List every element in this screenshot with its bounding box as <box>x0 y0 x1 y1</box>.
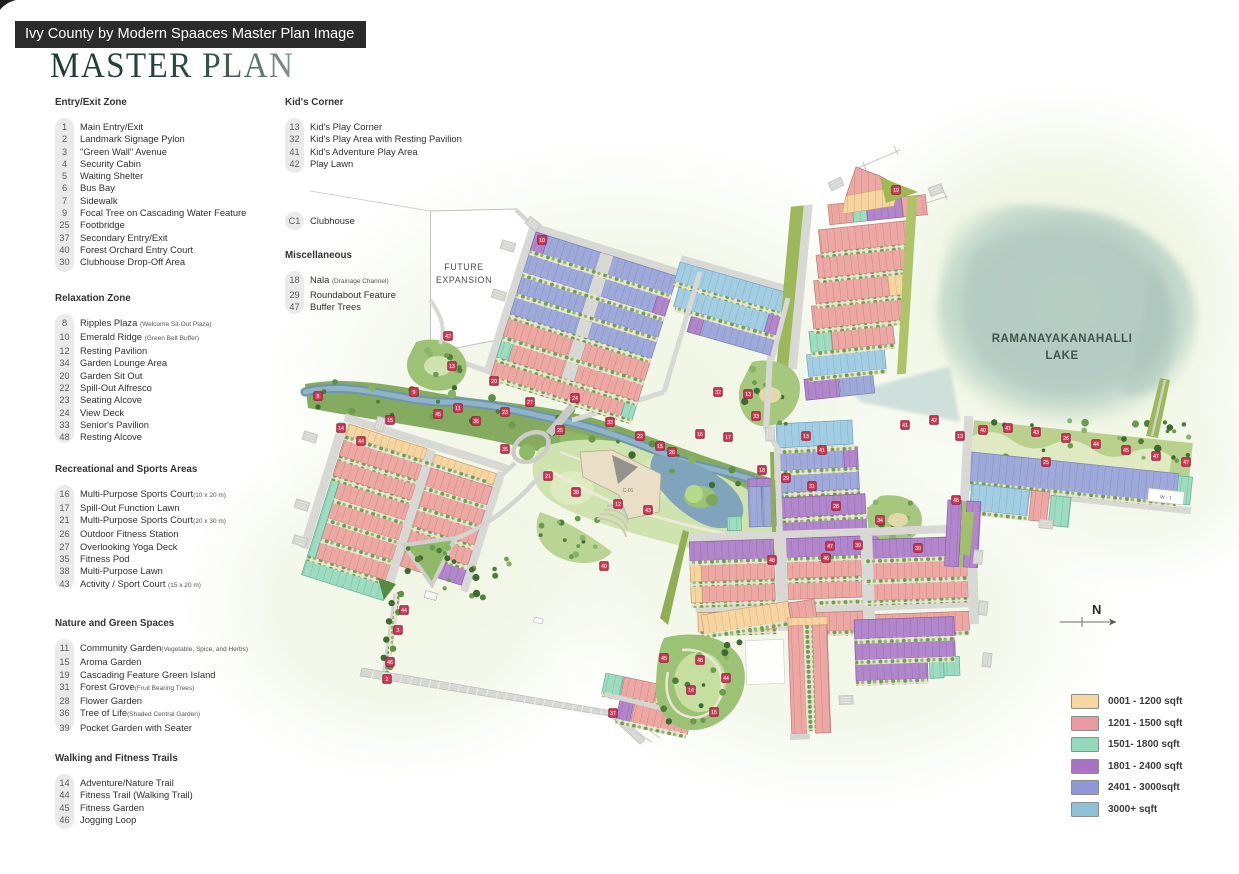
svg-text:36: 36 <box>473 419 479 425</box>
svg-text:14: 14 <box>338 426 344 432</box>
svg-text:44: 44 <box>401 608 407 614</box>
svg-text:40: 40 <box>601 564 607 570</box>
svg-text:24: 24 <box>572 396 578 402</box>
svg-text:13: 13 <box>957 434 963 440</box>
svg-text:45: 45 <box>435 412 441 418</box>
svg-text:46: 46 <box>823 556 829 562</box>
svg-text:42: 42 <box>445 334 451 340</box>
svg-text:23: 23 <box>502 410 508 416</box>
svg-text:47: 47 <box>1153 454 1159 460</box>
svg-text:9: 9 <box>413 390 416 396</box>
svg-text:44: 44 <box>358 439 364 445</box>
svg-text:38: 38 <box>573 490 579 496</box>
svg-text:42: 42 <box>931 418 937 424</box>
svg-text:15: 15 <box>657 444 663 450</box>
svg-text:33: 33 <box>607 420 613 426</box>
svg-text:29: 29 <box>783 476 789 482</box>
svg-text:46: 46 <box>953 498 959 504</box>
svg-text:41: 41 <box>902 423 908 429</box>
svg-text:13: 13 <box>803 434 809 440</box>
svg-text:22: 22 <box>637 434 643 440</box>
svg-text:RAMANAYAKANAHALLI: RAMANAYAKANAHALLI <box>992 333 1133 345</box>
svg-text:15: 15 <box>711 710 717 716</box>
svg-text:N: N <box>1092 603 1101 617</box>
svg-text:C-01: C-01 <box>623 488 634 494</box>
svg-text:41: 41 <box>1005 426 1011 432</box>
svg-text:15: 15 <box>387 418 393 424</box>
svg-text:43: 43 <box>645 508 651 514</box>
svg-text:41: 41 <box>819 448 825 454</box>
svg-text:39: 39 <box>855 543 861 549</box>
svg-text:40: 40 <box>980 428 986 434</box>
svg-text:25: 25 <box>557 428 563 434</box>
svg-text:43: 43 <box>1033 430 1039 436</box>
svg-text:44: 44 <box>723 676 729 682</box>
svg-text:21: 21 <box>545 474 551 480</box>
svg-text:W - 1: W - 1 <box>1160 494 1172 501</box>
svg-text:31: 31 <box>809 484 815 490</box>
svg-text:11: 11 <box>455 406 460 412</box>
svg-text:47: 47 <box>1183 460 1189 466</box>
svg-text:37: 37 <box>610 711 616 717</box>
svg-text:48: 48 <box>769 558 775 564</box>
svg-text:16: 16 <box>697 432 703 438</box>
svg-text:45: 45 <box>1123 448 1129 454</box>
svg-text:47: 47 <box>827 544 833 550</box>
svg-text:33: 33 <box>753 414 759 420</box>
svg-text:35: 35 <box>502 447 508 453</box>
svg-text:13: 13 <box>745 392 751 398</box>
svg-text:12: 12 <box>615 502 621 508</box>
svg-text:28: 28 <box>833 504 839 510</box>
svg-text:2: 2 <box>386 677 389 683</box>
svg-text:8: 8 <box>317 394 320 400</box>
svg-text:46: 46 <box>387 660 393 666</box>
svg-text:32: 32 <box>715 390 721 396</box>
svg-text:3: 3 <box>397 628 400 634</box>
svg-text:30: 30 <box>915 546 921 552</box>
svg-text:20: 20 <box>491 379 497 385</box>
svg-text:17: 17 <box>725 435 731 441</box>
svg-text:44: 44 <box>1093 442 1099 448</box>
svg-text:27: 27 <box>527 400 533 406</box>
svg-text:46: 46 <box>697 658 703 664</box>
svg-text:10: 10 <box>539 238 545 244</box>
svg-text:26: 26 <box>1063 436 1069 442</box>
svg-text:34: 34 <box>877 518 883 524</box>
svg-text:25: 25 <box>1043 460 1049 466</box>
svg-text:26: 26 <box>669 450 675 456</box>
svg-text:18: 18 <box>759 468 765 474</box>
svg-text:19: 19 <box>893 188 899 194</box>
svg-text:13: 13 <box>449 364 455 370</box>
svg-text:45: 45 <box>661 656 667 662</box>
svg-text:LAKE: LAKE <box>1045 350 1078 362</box>
svg-text:14: 14 <box>688 688 694 694</box>
